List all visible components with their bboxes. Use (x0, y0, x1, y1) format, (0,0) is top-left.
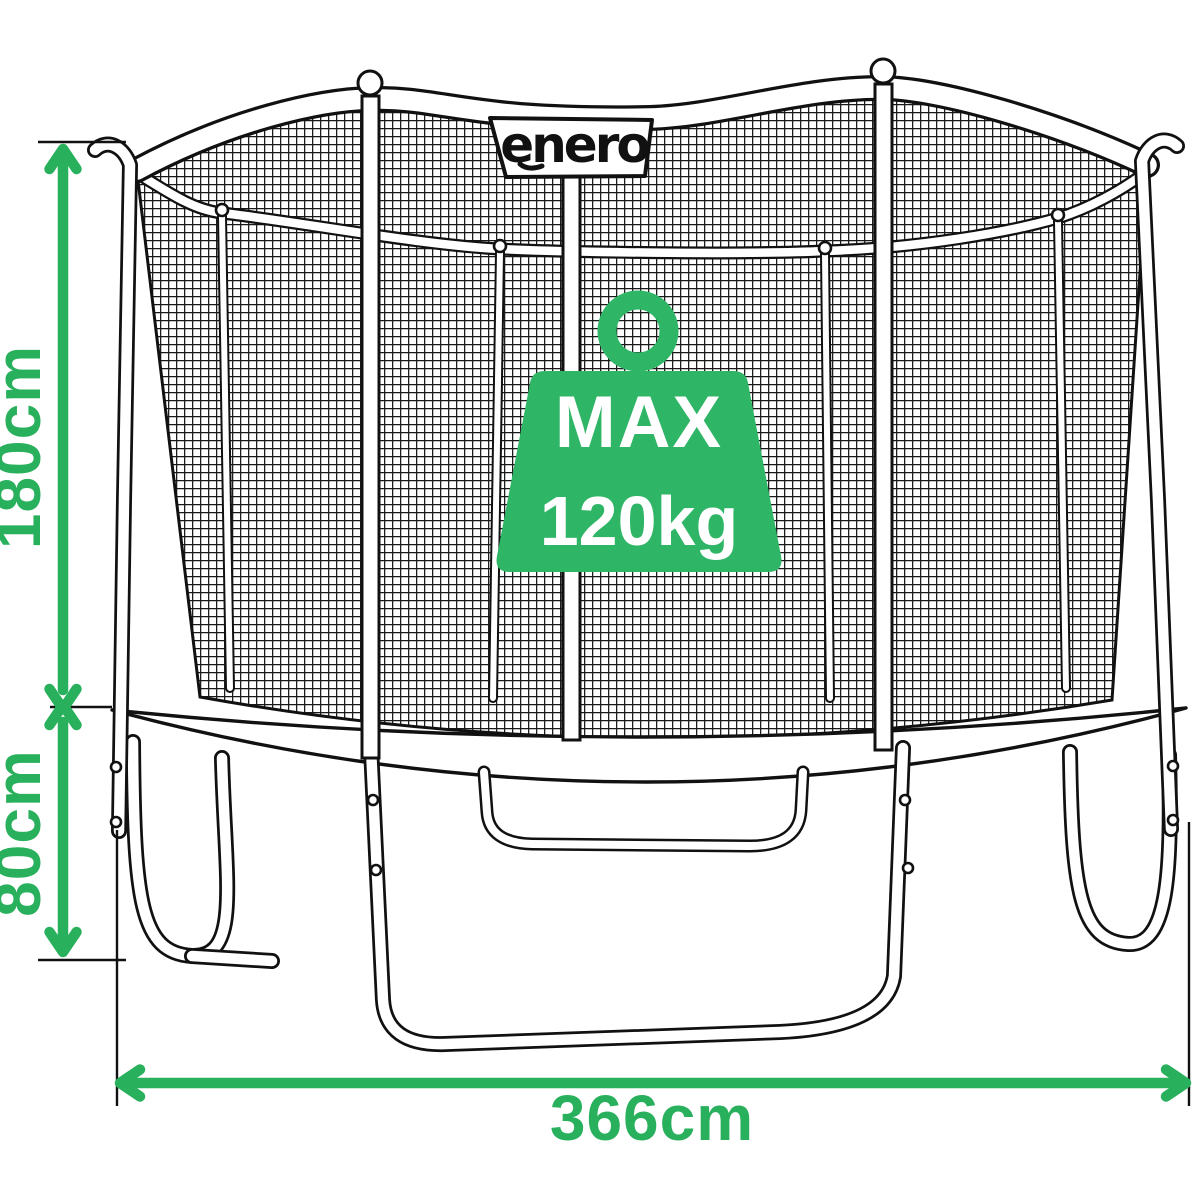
bolt-icon (900, 795, 910, 805)
rear-pole-cap-icon (819, 242, 831, 254)
bolt-icon (1168, 761, 1178, 771)
brand-logo-text: enero (500, 116, 649, 174)
diagram-canvas: enero MAX 120kg (0, 0, 1200, 1200)
pole-ball-cap-icon (871, 59, 895, 83)
bolt-icon (903, 863, 913, 873)
rear-pole-cap-icon (1052, 209, 1064, 221)
bolt-icon (368, 795, 378, 805)
weight-badge-max-text: MAX (555, 382, 723, 463)
pole-ball-cap-icon (358, 71, 382, 95)
frame-height-label: 80cm (0, 749, 54, 917)
rear-pole-cap-icon (216, 204, 228, 216)
bolt-icon (111, 762, 121, 772)
net-pole-left-center (362, 96, 379, 758)
trampoline-dimension-diagram: enero MAX 120kg (0, 0, 1200, 1200)
weight-badge-value-text: 120kg (540, 482, 738, 560)
brand-label: enero (490, 116, 652, 177)
net-pole-right-center (875, 84, 892, 750)
total-width-label: 366cm (550, 1082, 754, 1154)
bolt-icon (1168, 815, 1178, 825)
net-height-label: 180cm (0, 345, 54, 549)
bolt-icon (371, 865, 381, 875)
rear-pole-cap-icon (494, 240, 506, 252)
bolt-icon (111, 817, 121, 827)
